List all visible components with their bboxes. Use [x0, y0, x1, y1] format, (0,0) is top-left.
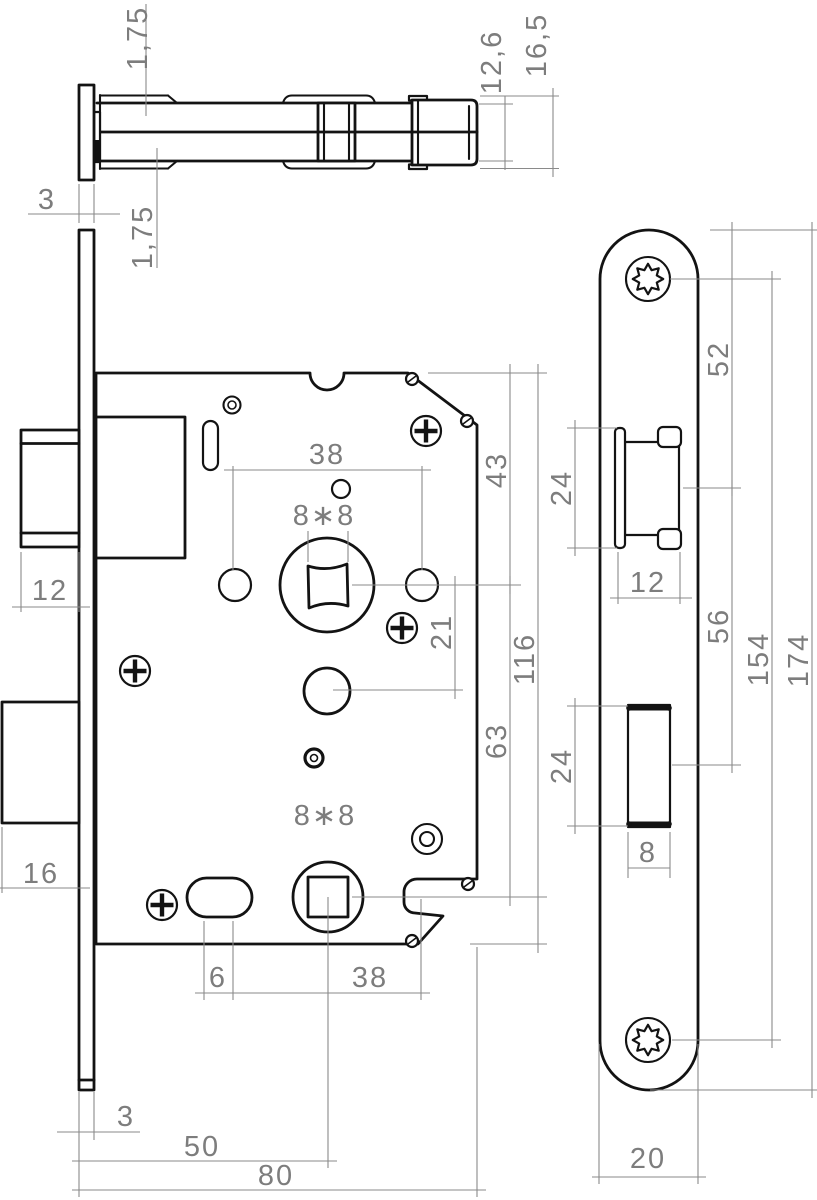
top-view-body — [79, 85, 477, 180]
spindle-square-upper — [308, 564, 348, 608]
dim-label-bolt-width: 8 — [639, 837, 657, 869]
torx-star-icon — [633, 1025, 663, 1055]
top-view-dimensions: 1,75 3 1,75 12,6 16,5 — [28, 4, 559, 269]
small-screw — [406, 935, 418, 947]
dim-label-hub-to-spindle: 63 — [481, 723, 513, 759]
deadbolt — [2, 702, 79, 823]
dim-label-upper-square: 8∗8 — [293, 500, 356, 532]
latch-bolt — [21, 430, 79, 547]
dim-label-hub-to-hole: 21 — [426, 614, 458, 650]
phillips-screw — [147, 890, 177, 920]
dim-label-edge-to-hub: 43 — [481, 452, 513, 488]
faceplate-plate — [600, 230, 698, 1090]
dim-label-plate-height: 174 — [783, 633, 815, 687]
horizontal-slot — [187, 878, 252, 917]
cylinder-hole — [304, 668, 350, 714]
small-screw — [461, 415, 473, 427]
torx-screw-top — [626, 257, 670, 301]
drawing-page: 1,75 3 1,75 12,6 16,5 — [0, 0, 817, 1200]
torx-star-icon — [633, 264, 663, 294]
torx-screw-bottom — [626, 1018, 670, 1062]
dim-label-lower-square: 8∗8 — [294, 800, 357, 832]
dim-label-plate-thickness: 3 — [117, 1101, 135, 1133]
dim-label-latch-cutout-width: 12 — [630, 567, 666, 599]
dim-label-plate-width: 20 — [630, 1143, 666, 1175]
phillips-screw — [120, 656, 150, 686]
top-view: 1,75 3 1,75 12,6 16,5 — [28, 4, 559, 269]
dim-label-inner-depth: 12,6 — [476, 30, 508, 94]
small-screw — [462, 878, 474, 890]
dim-label-faceplate-thickness-top: 3 — [38, 184, 56, 216]
dim-label-latch-height: 24 — [546, 470, 578, 506]
faceplate-view: 52 24 12 56 154 174 24 8 20 — [546, 222, 817, 1184]
dim-label-deadbolt-throw: 16 — [23, 858, 59, 890]
dim-label-latch-to-bolt: 56 — [703, 608, 735, 644]
phillips-screw — [387, 613, 417, 643]
dim-label-latch-width: 12 — [32, 575, 68, 607]
dim-label-lower-spacing: 38 — [352, 962, 388, 994]
dim-label-slot-offset: 6 — [209, 962, 227, 994]
dim-label-upper-spacing: 38 — [309, 439, 345, 471]
dim-label-outer-depth: 16,5 — [521, 13, 553, 77]
dim-label-bolt-height: 24 — [546, 748, 578, 784]
small-hole-lower — [305, 749, 323, 767]
latch-body — [96, 417, 185, 558]
small-screw — [406, 373, 418, 385]
dim-label-screw-spacing: 154 — [743, 632, 775, 686]
fixing-hole-left — [219, 569, 251, 601]
dim-label-case-height: 116 — [509, 633, 541, 685]
phillips-screw — [411, 416, 441, 446]
front-view: 12 38 8∗8 43 21 116 63 16 8∗8 6 38 3 50 … — [0, 230, 547, 1197]
dim-label-case-depth: 80 — [258, 1160, 294, 1192]
deadbolt-cutout — [626, 705, 672, 827]
dim-label-backset: 50 — [184, 1131, 220, 1163]
vertical-slot — [203, 421, 218, 470]
faceplate-section — [79, 85, 94, 180]
dim-label-top-to-latch: 52 — [703, 341, 735, 377]
dim-label-overhang-top: 1,75 — [122, 6, 154, 70]
dim-label-overhang-bottom: 1,75 — [127, 205, 159, 269]
lock-technical-drawing: 1,75 3 1,75 12,6 16,5 — [0, 0, 817, 1200]
small-hole-upper — [332, 480, 350, 498]
faceplate-front — [79, 230, 94, 1090]
latch-cutout — [615, 427, 681, 549]
